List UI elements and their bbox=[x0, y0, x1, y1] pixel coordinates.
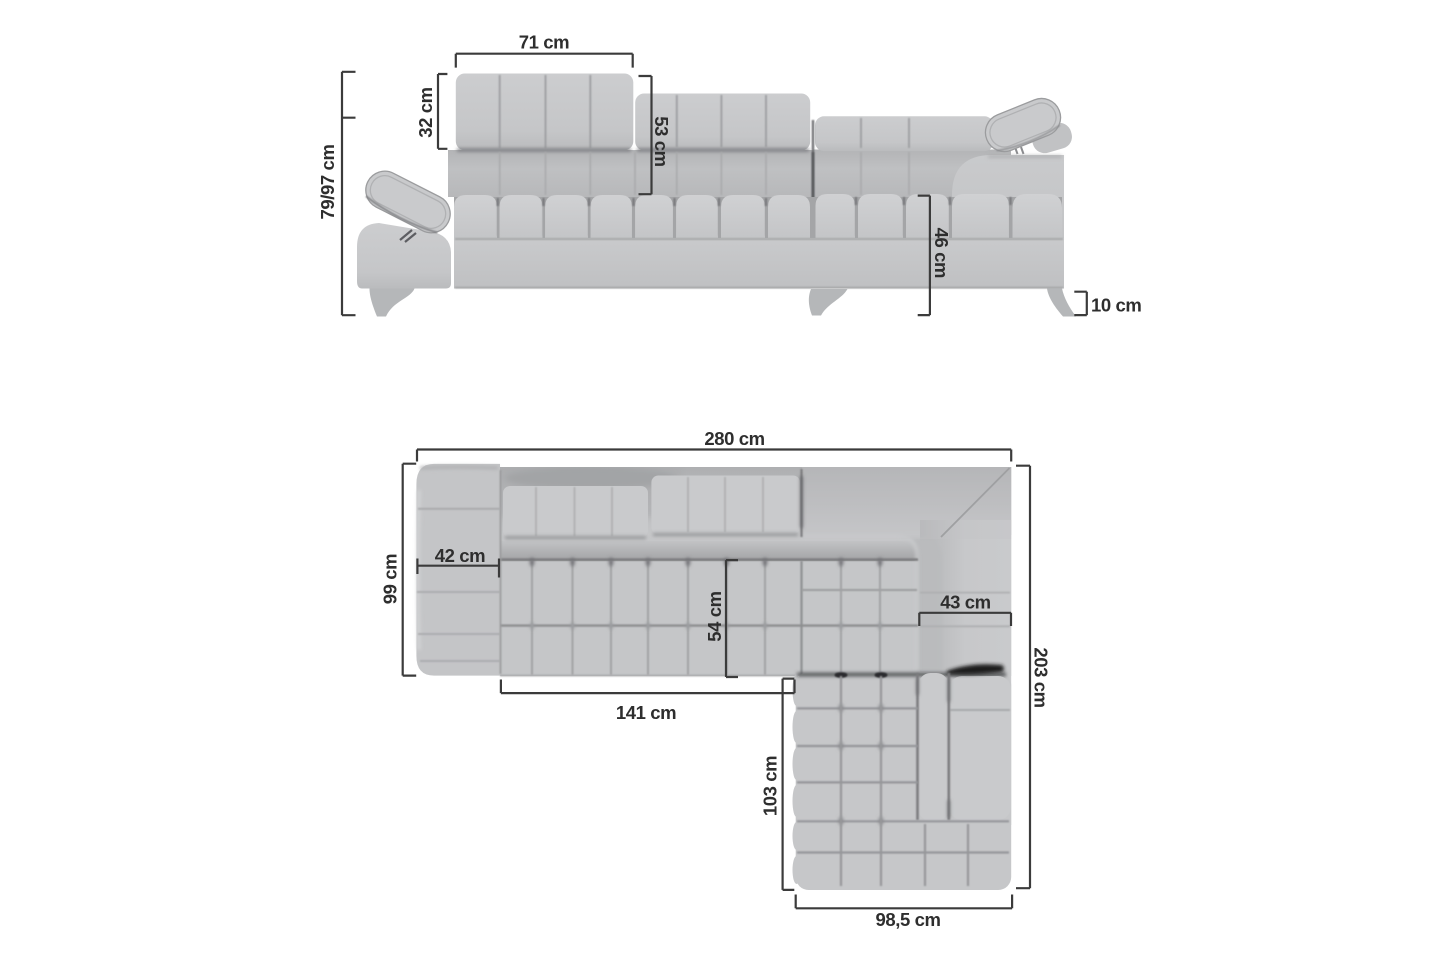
svg-text:53 cm: 53 cm bbox=[651, 116, 672, 166]
svg-text:43 cm: 43 cm bbox=[940, 591, 990, 612]
svg-text:54 cm: 54 cm bbox=[704, 591, 725, 641]
svg-text:280 cm: 280 cm bbox=[704, 428, 764, 449]
svg-text:71 cm: 71 cm bbox=[519, 32, 569, 53]
svg-text:99 cm: 99 cm bbox=[379, 554, 400, 604]
svg-text:10 cm: 10 cm bbox=[1091, 295, 1141, 316]
svg-text:103 cm: 103 cm bbox=[759, 756, 780, 816]
svg-text:141 cm: 141 cm bbox=[616, 702, 676, 723]
svg-text:203 cm: 203 cm bbox=[1031, 647, 1052, 707]
svg-text:46 cm: 46 cm bbox=[931, 228, 952, 278]
svg-text:98,5 cm: 98,5 cm bbox=[875, 909, 940, 930]
svg-text:79/97 cm: 79/97 cm bbox=[317, 145, 338, 220]
svg-text:32 cm: 32 cm bbox=[415, 87, 436, 137]
svg-text:42 cm: 42 cm bbox=[435, 545, 485, 566]
